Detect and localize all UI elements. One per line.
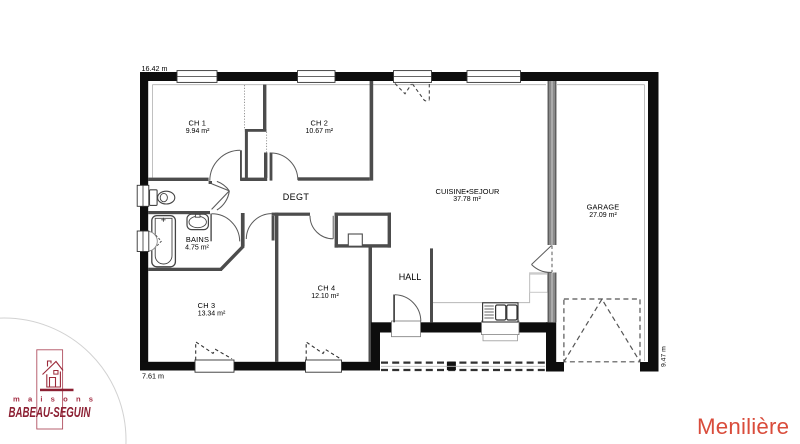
svg-text:7.61 m: 7.61 m (142, 372, 164, 381)
svg-text:BAINS: BAINS (186, 235, 209, 244)
svg-text:Menilière: Menilière (697, 414, 789, 439)
svg-text:CH 4: CH 4 (318, 284, 336, 293)
svg-text:CUISINE•SEJOUR: CUISINE•SEJOUR (436, 187, 500, 196)
svg-text:12.10 m²: 12.10 m² (311, 293, 339, 300)
svg-text:CH 2: CH 2 (310, 119, 328, 128)
svg-text:16.42 m: 16.42 m (142, 64, 168, 73)
svg-text:9.94 m²: 9.94 m² (186, 128, 210, 135)
svg-text:13.34 m²: 13.34 m² (198, 310, 226, 317)
svg-text:DEGT: DEGT (283, 192, 310, 202)
svg-text:HALL: HALL (399, 272, 422, 282)
svg-text:maisons: maisons (13, 395, 101, 404)
svg-text:4.75 m²: 4.75 m² (185, 245, 209, 252)
svg-text:10.67 m²: 10.67 m² (305, 128, 333, 135)
svg-text:27.09 m²: 27.09 m² (589, 212, 617, 219)
svg-text:CH 3: CH 3 (198, 301, 216, 310)
svg-text:9.47 m: 9.47 m (661, 346, 668, 367)
svg-text:BABEAU-SEGUIN: BABEAU-SEGUIN (9, 405, 91, 421)
svg-text:37.78 m²: 37.78 m² (453, 196, 481, 203)
svg-text:CH 1: CH 1 (188, 119, 206, 128)
svg-text:GARAGE: GARAGE (587, 203, 620, 212)
